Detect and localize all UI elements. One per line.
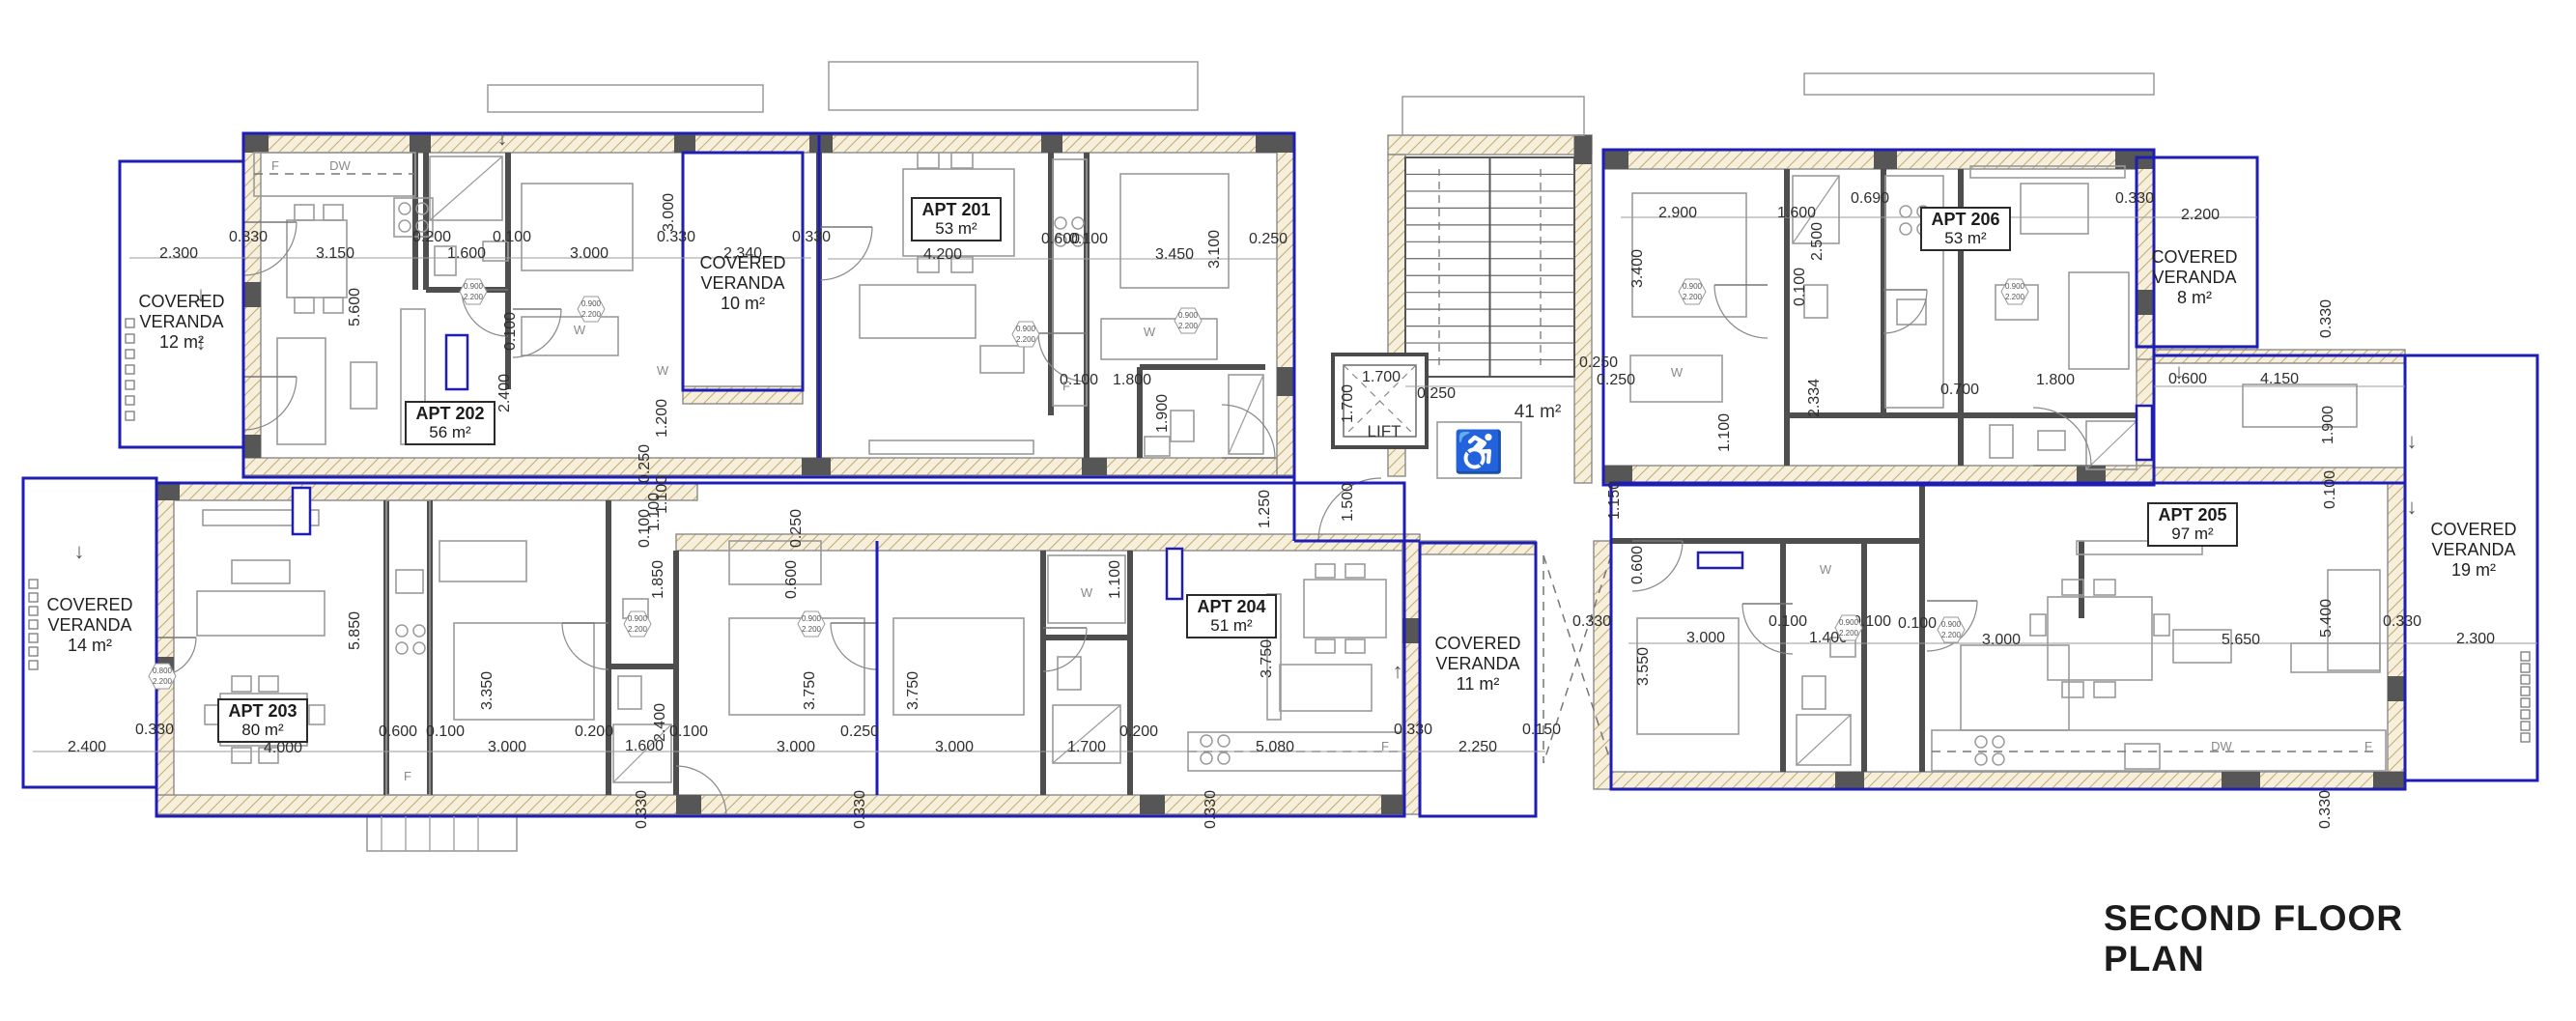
- veranda-label-veranda-11: COVEREDVERANDA11 m²: [1434, 634, 1520, 694]
- svg-text:APT 203: APT 203: [228, 701, 297, 721]
- dimension-2.334: 2.334: [1806, 379, 1823, 417]
- floor-plan-drawing: 2.3000.3303.1500.2001.6000.1003.0000.330…: [0, 0, 2576, 1021]
- dimension-0.330: 0.330: [792, 229, 831, 245]
- svg-text:0.900: 0.900: [464, 282, 484, 291]
- dimension-1.700: 1.700: [1362, 369, 1401, 385]
- dimension-0.100: 0.100: [1792, 268, 1808, 306]
- svg-text:14 m²: 14 m²: [68, 636, 112, 655]
- dimension-2.400: 2.400: [496, 374, 513, 412]
- arrow-icon: ↓: [2407, 429, 2418, 453]
- svg-text:8 m²: 8 m²: [2177, 288, 2212, 307]
- dimension-0.330: 0.330: [2318, 299, 2335, 338]
- svg-text:0.800: 0.800: [153, 666, 173, 675]
- arrow-icon: ↓: [2407, 495, 2418, 519]
- dimension-5.400: 5.400: [2318, 599, 2335, 638]
- svg-text:80 m²: 80 m²: [241, 721, 284, 739]
- letter-F: F: [2364, 739, 2372, 753]
- dimension-3.100: 3.100: [1206, 230, 1223, 269]
- svg-text:0.900: 0.900: [1178, 311, 1199, 320]
- dimension-1.100: 1.100: [646, 493, 663, 531]
- svg-text:0.900: 0.900: [1839, 618, 1859, 627]
- apartment-label-apt-204: APT 20451 m²: [1187, 595, 1276, 638]
- dimension-3.750: 3.750: [802, 671, 818, 710]
- dimension-3.000: 3.000: [1982, 632, 2021, 648]
- dimension-0.600: 0.600: [379, 723, 417, 740]
- dimension-3.400: 3.400: [1629, 249, 1646, 288]
- svg-text:2.200: 2.200: [1941, 631, 1962, 639]
- dimension-1.250: 1.250: [1257, 490, 1273, 528]
- svg-text:VERANDA: VERANDA: [2431, 540, 2515, 559]
- dimension-1.700: 1.700: [1340, 384, 1356, 423]
- letter-F: F: [271, 158, 279, 173]
- dimension-1.500: 1.500: [1340, 483, 1356, 522]
- accessible-wc: ♿: [1454, 428, 1504, 475]
- dimension-0.250: 0.250: [1417, 385, 1456, 402]
- svg-text:2.200: 2.200: [464, 293, 484, 301]
- dimension-0.330: 0.330: [2115, 190, 2154, 207]
- svg-text:VERANDA: VERANDA: [139, 312, 223, 331]
- dimension-1.150: 1.150: [1606, 481, 1623, 520]
- svg-text:97 m²: 97 m²: [2171, 525, 2214, 543]
- dimension-0.100: 0.100: [493, 229, 531, 245]
- arrow-icon: ↑: [1393, 659, 1403, 683]
- svg-text:56 m²: 56 m²: [429, 423, 471, 441]
- dimension-0.330: 0.330: [634, 790, 650, 829]
- svg-text:2.200: 2.200: [1839, 629, 1859, 638]
- dimension-0.200: 0.200: [575, 723, 613, 740]
- svg-text:APT 204: APT 204: [1197, 597, 1265, 616]
- letter-F: F: [1062, 379, 1070, 393]
- dimension-2.200: 2.200: [2181, 207, 2220, 223]
- svg-text:0.900: 0.900: [802, 614, 822, 623]
- dimension-2.400: 2.400: [68, 739, 106, 755]
- svg-text:COVERED: COVERED: [46, 595, 132, 614]
- apartment-label-apt-201: APT 20153 m²: [912, 198, 1001, 241]
- dimension-3.000: 3.000: [570, 245, 609, 262]
- dimension-2.400: 2.400: [652, 703, 668, 742]
- svg-text:10 m²: 10 m²: [721, 294, 765, 313]
- staircase: [1405, 157, 1574, 377]
- apartment-label-apt-205: APT 20597 m²: [2148, 503, 2237, 546]
- apartment-label-apt-203: APT 20380 m²: [218, 699, 307, 742]
- dimension-0.250: 0.250: [1579, 355, 1618, 371]
- dimension-0.330: 0.330: [1572, 613, 1611, 630]
- apartment-label-apt-202: APT 20256 m²: [406, 402, 495, 444]
- dimension-0.150: 0.150: [1522, 722, 1561, 738]
- wheelchair-icon: ♿: [1454, 428, 1504, 475]
- svg-text:0.900: 0.900: [628, 614, 648, 623]
- dimension-0.690: 0.690: [1851, 190, 1889, 207]
- arrow-icon: ↓: [2174, 359, 2185, 383]
- veranda-label-veranda-12: COVEREDVERANDA12 m²: [138, 292, 224, 352]
- svg-text:2.200: 2.200: [802, 625, 822, 634]
- veranda-label-veranda-19: COVEREDVERANDA19 m²: [2430, 520, 2516, 580]
- letter-DW: DW: [329, 158, 351, 173]
- letter-W: W: [1671, 365, 1684, 380]
- dimension-0.250: 0.250: [840, 723, 879, 740]
- svg-text:12 m²: 12 m²: [159, 332, 204, 352]
- letter-W: W: [657, 363, 669, 378]
- dimension-3.000: 3.000: [1686, 630, 1725, 646]
- svg-text:0.900: 0.900: [2005, 282, 2025, 291]
- dimension-1.800: 1.800: [1113, 372, 1151, 388]
- svg-text:2.200: 2.200: [153, 677, 173, 686]
- svg-text:53 m²: 53 m²: [1944, 229, 1987, 247]
- dimension-2.300: 2.300: [159, 245, 198, 262]
- dimension-0.250: 0.250: [1597, 372, 1635, 388]
- svg-text:11 m²: 11 m²: [1457, 674, 1500, 694]
- dimension-2.500: 2.500: [1809, 222, 1826, 261]
- letter-W: W: [1144, 325, 1156, 339]
- letter-W: W: [1081, 585, 1093, 600]
- dimension-5.850: 5.850: [347, 611, 363, 650]
- svg-text:2.200: 2.200: [1016, 335, 1036, 344]
- svg-text:APT 201: APT 201: [921, 200, 990, 219]
- dimension-3.000: 3.000: [488, 739, 526, 755]
- dimension-0.100: 0.100: [2322, 470, 2338, 509]
- plan-title: SECOND FLOOR PLAN: [2104, 898, 2509, 979]
- dimension-0.330: 0.330: [1394, 722, 1432, 738]
- svg-text:53 m²: 53 m²: [935, 219, 977, 238]
- arrow-icon: ↓: [497, 126, 508, 150]
- svg-text:APT 205: APT 205: [2158, 505, 2226, 525]
- dimension-3.000: 3.000: [935, 739, 974, 755]
- letter-F: F: [404, 769, 411, 783]
- svg-text:2.200: 2.200: [581, 310, 602, 319]
- dimension-4.150: 4.150: [2260, 371, 2299, 387]
- svg-text:COVERED: COVERED: [699, 253, 785, 272]
- dimension-2.900: 2.900: [1658, 205, 1697, 221]
- svg-text:APT 206: APT 206: [1931, 210, 1999, 229]
- svg-text:COVERED: COVERED: [2151, 247, 2237, 267]
- dimension-4.200: 4.200: [923, 246, 962, 263]
- dimension-2.250: 2.250: [1458, 739, 1497, 755]
- dimension-0.200: 0.200: [1119, 723, 1158, 740]
- dimension-5.600: 5.600: [347, 288, 363, 326]
- dimension-0.100: 0.100: [669, 723, 708, 740]
- svg-text:0.900: 0.900: [1016, 325, 1036, 333]
- svg-text:2.200: 2.200: [2005, 293, 2025, 301]
- svg-text:2.200: 2.200: [628, 625, 648, 634]
- lobby-area-label: 41 m²: [1514, 402, 1562, 422]
- dimension-1.800: 1.800: [2036, 372, 2075, 388]
- dimension-0.330: 0.330: [229, 229, 268, 245]
- svg-text:COVERED: COVERED: [2430, 520, 2516, 539]
- arrow-icon: ↓: [74, 539, 85, 563]
- veranda-label-veranda-10: COVEREDVERANDA10 m²: [699, 253, 785, 313]
- dimension-0.600: 0.600: [783, 560, 800, 599]
- dimension-2.300: 2.300: [2456, 631, 2495, 647]
- svg-text:19 m²: 19 m²: [2451, 560, 2496, 580]
- dimension-3.750: 3.750: [1259, 639, 1275, 678]
- dimension-3.550: 3.550: [1635, 647, 1652, 686]
- dimension-0.250: 0.250: [637, 444, 653, 483]
- dimension-1.600: 1.600: [1777, 205, 1816, 221]
- dimension-0.100: 0.100: [1069, 231, 1108, 247]
- svg-text:2.200: 2.200: [1683, 293, 1703, 301]
- svg-text:0.900: 0.900: [581, 299, 602, 308]
- dimension-0.330: 0.330: [1203, 790, 1219, 829]
- dimension-3.450: 3.450: [1155, 246, 1194, 263]
- dimension-0.250: 0.250: [788, 509, 805, 548]
- dimension-1.600: 1.600: [447, 245, 486, 262]
- svg-text:0.900: 0.900: [1941, 620, 1962, 629]
- dimension-0.330: 0.330: [2383, 613, 2421, 630]
- dimension-3.350: 3.350: [479, 671, 495, 710]
- svg-text:51 m²: 51 m²: [1210, 616, 1253, 635]
- dimension-3.750: 3.750: [905, 671, 921, 710]
- svg-text:VERANDA: VERANDA: [700, 273, 784, 293]
- dimension-0.600: 0.600: [1629, 546, 1646, 584]
- dimension-0.250: 0.250: [1249, 231, 1288, 247]
- dimension-0.100: 0.100: [502, 312, 519, 351]
- svg-text:VERANDA: VERANDA: [2152, 268, 2236, 287]
- floor-plan-stage: 2.3000.3303.1500.2001.6000.1003.0000.330…: [0, 0, 2576, 1021]
- svg-text:2.200: 2.200: [1178, 322, 1199, 330]
- letter-F: F: [1381, 739, 1389, 753]
- dimension-0.330: 0.330: [135, 722, 174, 738]
- dimension-3.150: 3.150: [316, 245, 354, 262]
- veranda-label-veranda-8: COVEREDVERANDA8 m²: [2151, 247, 2237, 307]
- letter-W: W: [574, 323, 586, 337]
- dimension-5.080: 5.080: [1256, 739, 1294, 755]
- dimension-1.900: 1.900: [2320, 406, 2336, 444]
- letter-DW: DW: [2211, 739, 2232, 753]
- dimension-0.200: 0.200: [412, 229, 451, 245]
- svg-text:VERANDA: VERANDA: [1435, 654, 1519, 673]
- dimension-1.200: 1.200: [654, 399, 670, 438]
- dimension-3.000: 3.000: [661, 193, 677, 232]
- svg-text:VERANDA: VERANDA: [47, 615, 131, 635]
- apartment-label-apt-206: APT 20653 m²: [1921, 208, 2010, 250]
- dimension-0.330: 0.330: [2317, 790, 2334, 829]
- dimension-0.100: 0.100: [1769, 613, 1807, 630]
- dimension-0.700: 0.700: [1940, 382, 1979, 398]
- dimension-1.900: 1.900: [1154, 394, 1171, 433]
- dimension-0.100: 0.100: [426, 723, 465, 740]
- svg-text:0.900: 0.900: [1683, 282, 1703, 291]
- dimension-0.330: 0.330: [852, 790, 868, 829]
- veranda-label-veranda-14: COVEREDVERANDA14 m²: [46, 595, 132, 655]
- dimension-0.100: 0.100: [1898, 615, 1937, 632]
- svg-text:COVERED: COVERED: [1434, 634, 1520, 653]
- dimension-1.700: 1.700: [1067, 739, 1106, 755]
- letter-W: W: [1820, 562, 1832, 577]
- svg-text:APT 202: APT 202: [415, 404, 484, 423]
- dimension-1.100: 1.100: [1716, 413, 1733, 452]
- dimension-1.100: 1.100: [1107, 560, 1123, 599]
- dimension-5.650: 5.650: [2222, 632, 2260, 648]
- svg-text:COVERED: COVERED: [138, 292, 224, 311]
- dimension-3.000: 3.000: [777, 739, 815, 755]
- lift-label: LIFT: [1368, 422, 1401, 440]
- dimension-1.850: 1.850: [650, 560, 666, 599]
